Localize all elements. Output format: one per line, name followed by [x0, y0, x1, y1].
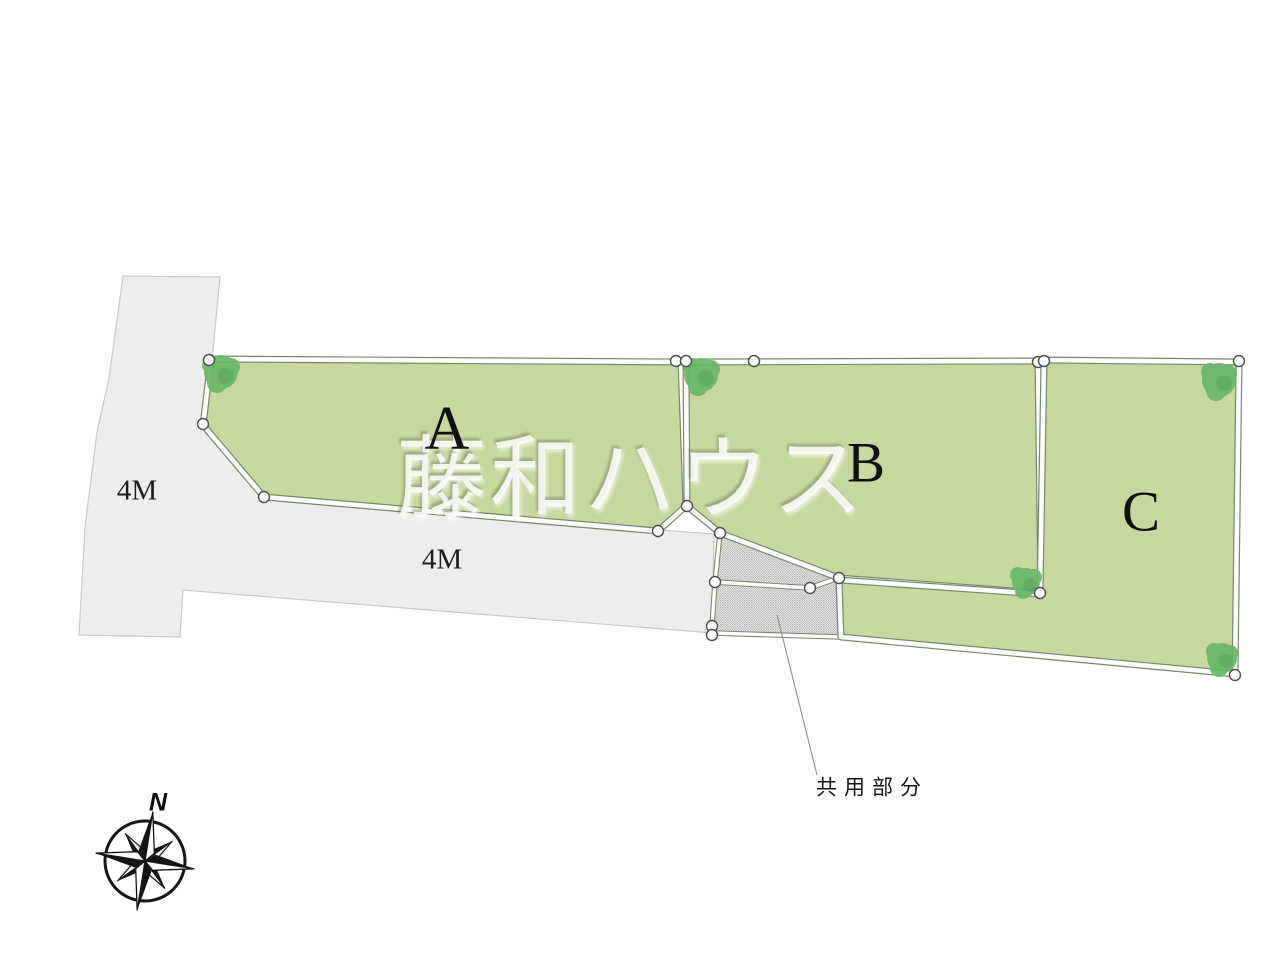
- lot-a-label: A: [425, 398, 470, 460]
- site-plan: 藤和ハウス A B C 4M 4M 共用部分 N: [0, 0, 1280, 960]
- lot-c-label: C: [1122, 484, 1160, 541]
- road-width-label-vertical: 4M: [117, 477, 157, 506]
- compass-north-label: N: [149, 791, 167, 816]
- leader-line: [777, 615, 817, 775]
- compass-rose-icon: [88, 804, 202, 918]
- common-area-label: 共用部分: [816, 778, 928, 799]
- road-width-label-horizontal: 4M: [422, 546, 462, 575]
- lot-b-label: B: [847, 435, 885, 492]
